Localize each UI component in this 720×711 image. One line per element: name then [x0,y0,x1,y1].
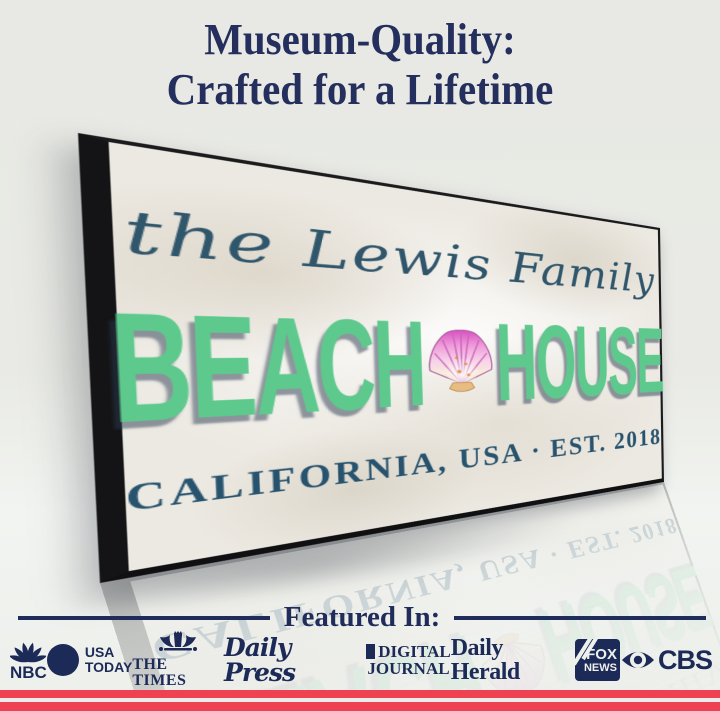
cbs-eye-icon [620,649,656,671]
usa-today-line2: TODAY [85,660,132,675]
digital-journal-line1: DIGITAL [378,643,450,660]
digital-journal-square-icon [366,644,375,659]
logo-digital-journal: DIGITAL JOURNAL [366,643,450,677]
featured-in-label: Featured In: [284,601,441,634]
beach-word: BEACH [107,289,426,447]
page-title-line2: Crafted for a Lifetime [25,68,695,112]
page-title-line1: Museum-Quality: [25,18,695,62]
featured-in-divider: Featured In: [18,601,706,634]
seashell-icon [425,322,495,399]
bottom-stripes [0,690,720,711]
stripe-red-bottom [0,702,720,711]
usa-today-line1: USA [85,645,132,660]
logo-fox-news: FOX NEWS [575,639,620,681]
times-crest-icon [156,631,200,655]
daily-press-wordmark: Daily Press [224,635,366,685]
times-wordmark: THE TIMES [132,657,224,689]
fox-news-line2: NEWS [584,663,617,674]
daily-herald-wordmark: Daily Herald [451,636,575,684]
product-marketing-image: Museum-Quality: Crafted for a Lifetime t… [0,0,720,711]
cbs-wordmark: CBS [658,647,712,674]
page-title: Museum-Quality: Crafted for a Lifetime [25,18,695,118]
logo-cbs: CBS [620,647,712,674]
house-word: HOUSE [495,307,664,418]
logo-nbc: NBC [10,639,47,681]
logo-usa-today: USA TODAY [47,644,132,676]
logo-daily-herald: Daily Herald [451,636,575,684]
logo-the-times: THE TIMES [132,631,224,689]
divider-rule-left [18,616,270,620]
media-logos-row: NBC USA TODAY THE TIMES [10,634,712,686]
stripe-red-top [0,690,720,698]
nbc-peacock-icon [10,639,46,663]
digital-journal-line2: JOURNAL [367,660,449,677]
usa-today-circle-icon [47,644,79,676]
nbc-wordmark: NBC [10,664,47,681]
logo-daily-press: Daily Press [224,635,366,685]
divider-rule-right [454,616,706,620]
